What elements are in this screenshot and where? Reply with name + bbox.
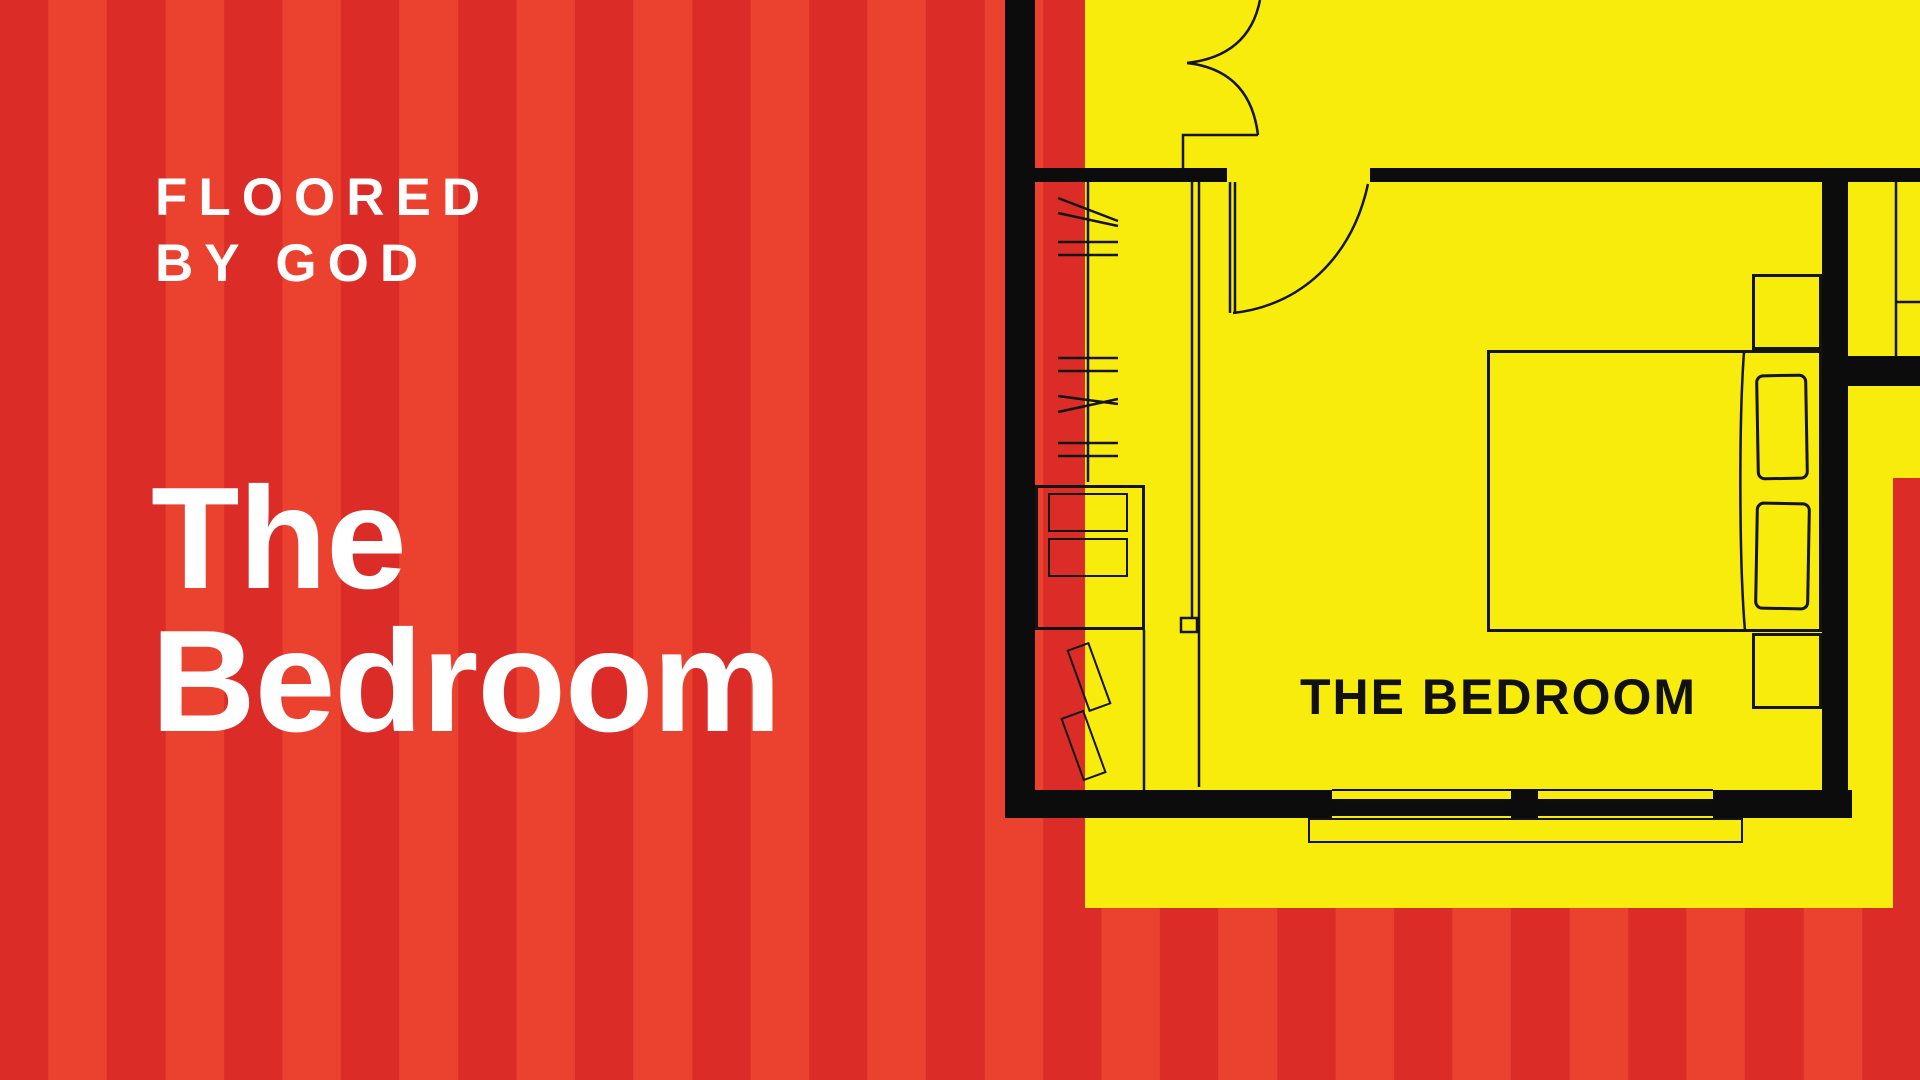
adjacent-room-closet xyxy=(1896,182,1920,356)
poster: FLOORED BY GOD The Bedroom THE BEDROOM xyxy=(0,0,1920,1080)
page-title: The Bedroom xyxy=(151,467,780,753)
hall-door-arc-upper xyxy=(1187,0,1260,63)
dresser-drawer-1 xyxy=(1048,493,1128,532)
dresser-drawer-2 xyxy=(1048,538,1128,577)
room-label: THE BEDROOM xyxy=(1300,670,1697,724)
pillow-1 xyxy=(1755,374,1809,481)
bedroom-door-leaf xyxy=(1230,182,1235,313)
hall-door-arc-lower xyxy=(1187,63,1258,135)
bedroom-door-swing-arc xyxy=(1233,184,1368,313)
brand-logo: FLOORED BY GOD xyxy=(155,165,491,297)
nightstand-top xyxy=(1752,274,1822,350)
hall-door-step xyxy=(1183,135,1258,168)
closet-sliding-door-cap xyxy=(1181,618,1197,632)
pillow-2 xyxy=(1754,502,1811,611)
nightstand-bottom xyxy=(1752,633,1822,709)
